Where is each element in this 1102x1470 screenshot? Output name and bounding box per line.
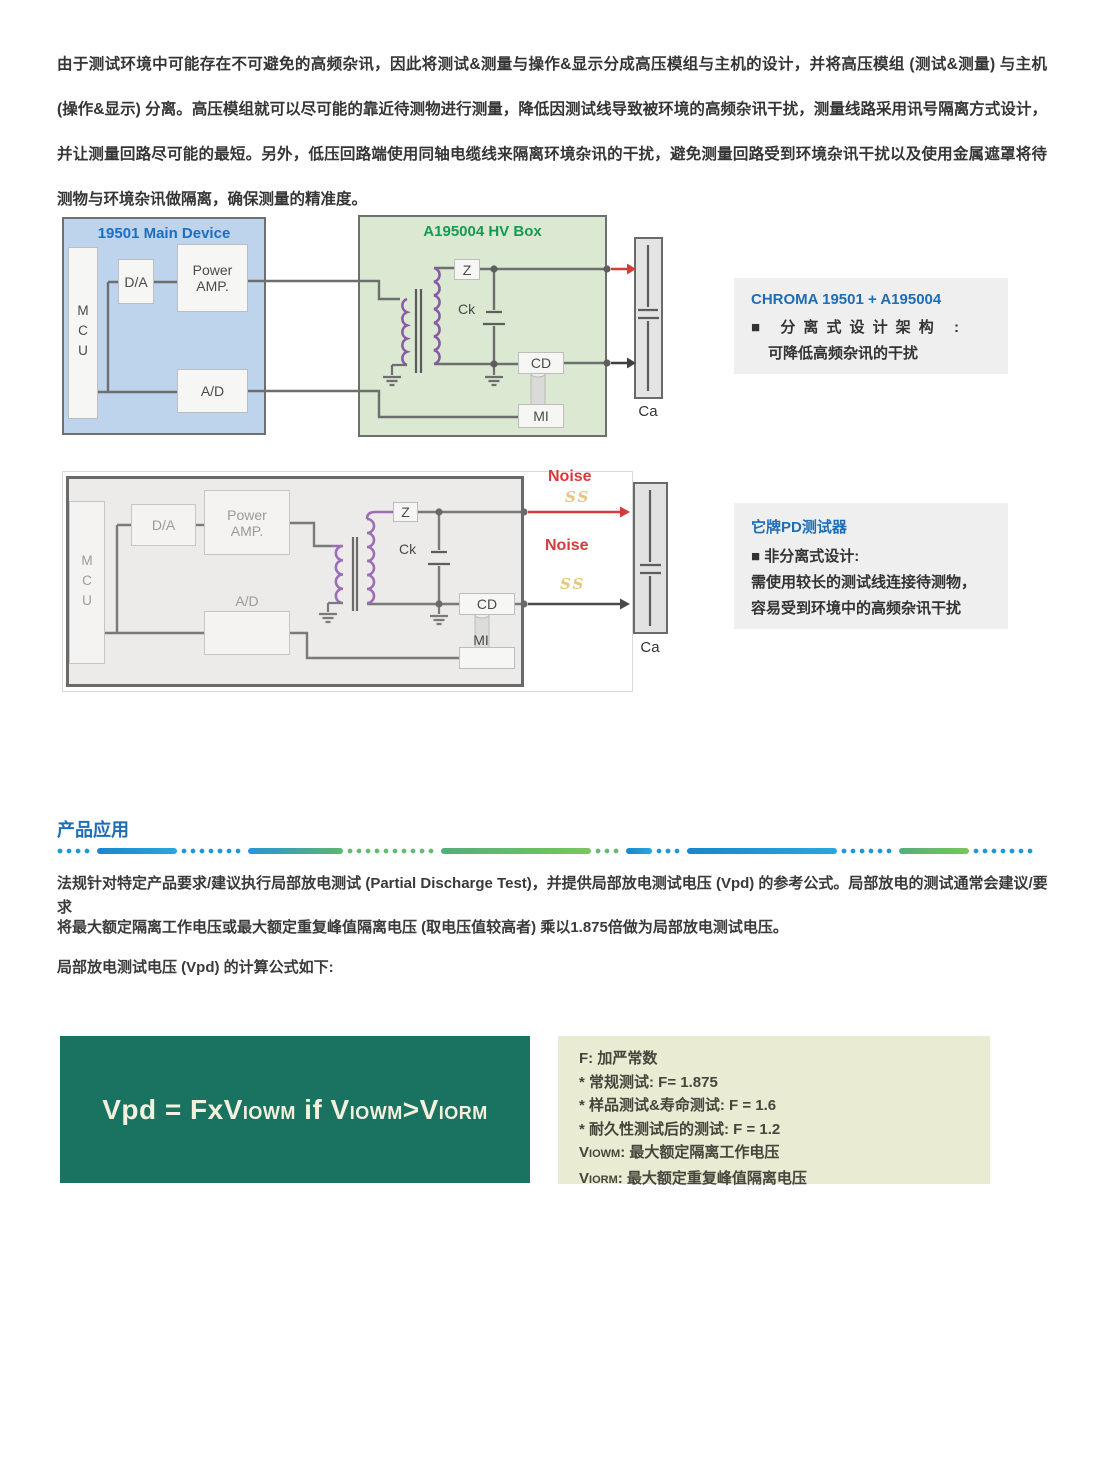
section-divider	[57, 847, 1047, 854]
ck-label: Ck	[399, 541, 416, 557]
mi-block	[459, 647, 515, 669]
ca-label: Ca	[630, 639, 670, 656]
divider-bar	[248, 848, 343, 854]
cd-block: CD	[459, 593, 515, 615]
hv-box-title: A195004 HV Box	[358, 223, 607, 240]
da-block: D/A	[118, 259, 154, 304]
mi-label: MI	[461, 632, 501, 648]
divider-dots	[973, 848, 1036, 854]
mi-block: MI	[518, 404, 564, 428]
legend-sample-test: * 样品测试&寿命测试: F = 1.6	[579, 1094, 969, 1118]
legend-viorm: VIORM: 最大额定重复峰值隔离电压	[579, 1167, 969, 1193]
formula-legend-box: F: 加严常数 * 常规测试: F= 1.875 * 样品测试&寿命测试: F …	[558, 1036, 990, 1184]
ca-label: Ca	[628, 403, 668, 420]
applications-paragraph-line3: 局部放电测试电压 (Vpd) 的计算公式如下:	[57, 956, 1049, 980]
applications-paragraph-line1: 法规针对特定产品要求/建议执行局部放电测试 (Partial Discharge…	[57, 872, 1049, 920]
intro-paragraph: 由于测试环境中可能存在不可避免的高频杂讯，因此将测试&测量与操作&显示分成高压模…	[57, 42, 1047, 222]
divider-dots	[57, 848, 93, 854]
section-title: 产品应用	[57, 816, 129, 842]
mcu-block: MCU	[69, 501, 105, 664]
power-amp-block: Power AMP.	[204, 490, 290, 555]
legend-viowm: VIOWM: 最大额定隔离工作电压	[579, 1141, 969, 1167]
mcu-block: MCU	[68, 247, 98, 419]
figure-other-brand-tester: MCU D/A Power AMP. A/D Z Ck CD MI Noise …	[62, 471, 674, 699]
legend-f: F: 加严常数	[579, 1047, 969, 1071]
noise-squiggle-bottom: SS	[560, 575, 585, 593]
note1-title: CHROMA 19501 + A195004	[751, 291, 991, 308]
note2-line1: ■ 非分离式设计:	[751, 544, 991, 570]
divider-dots	[656, 848, 683, 854]
ad-label: A/D	[204, 593, 290, 609]
output-arrow-hv	[611, 264, 636, 275]
note2-line2: 需使用较长的测试线连接待测物，	[751, 570, 991, 596]
divider-dots	[595, 848, 622, 854]
noise-label-top: Noise	[548, 468, 592, 486]
z-block: Z	[454, 259, 480, 280]
output-arrow-cd	[611, 358, 636, 369]
ad-block	[204, 611, 290, 655]
note1-line2: 可降低高频杂讯的干扰	[751, 341, 991, 367]
note-other-brand: 它牌PD测试器 ■ 非分离式设计: 需使用较长的测试线连接待测物， 容易受到环境…	[734, 503, 1008, 629]
ad-block: A/D	[177, 369, 248, 413]
divider-bar	[97, 848, 177, 854]
note-chroma-design: CHROMA 19501 + A195004 ■ 分离式设计架构 : 可降低高频…	[734, 278, 1008, 374]
figure-separated-design: 19501 Main Device MCU D/A Power AMP. A/D…	[62, 215, 674, 440]
note2-line3: 容易受到环境中的高频杂讯干扰	[751, 596, 991, 622]
divider-dots	[181, 848, 244, 854]
legend-regular-test: * 常规测试: F= 1.875	[579, 1071, 969, 1095]
ca-capacitor-box	[633, 482, 668, 634]
note1-line1: ■ 分离式设计架构 :	[751, 315, 959, 341]
cd-block: CD	[518, 352, 564, 374]
note2-title: 它牌PD测试器	[751, 516, 991, 537]
applications-paragraph-line2: 将最大额定隔离工作电压或最大额定重复峰值隔离电压 (取电压值较高者) 乘以1.8…	[57, 916, 1049, 940]
vpd-formula-box: Vpd = FxVIOWM if VIOWM>VIORM	[60, 1036, 530, 1183]
noise-squiggle-top: SS	[565, 488, 590, 506]
divider-dots	[841, 848, 895, 854]
vpd-formula: Vpd = FxVIOWM if VIOWM>VIORM	[102, 1094, 488, 1126]
ca-capacitor-box	[634, 237, 663, 399]
power-amp-block: Power AMP.	[177, 244, 248, 312]
legend-endurance-test: * 耐久性测试后的测试: F = 1.2	[579, 1118, 969, 1142]
noise-label-mid: Noise	[545, 537, 589, 555]
divider-dots	[347, 848, 437, 854]
divider-bar	[899, 848, 969, 854]
divider-bar	[687, 848, 837, 854]
divider-bar	[626, 848, 652, 854]
divider-bar	[441, 848, 591, 854]
da-block: D/A	[131, 504, 196, 546]
main-device-title: 19501 Main Device	[62, 225, 266, 242]
z-block: Z	[393, 502, 418, 522]
ck-label: Ck	[458, 301, 475, 317]
document-page: 由于测试环境中可能存在不可避免的高频杂讯，因此将测试&测量与操作&显示分成高压模…	[0, 0, 1102, 1470]
hv-box	[358, 215, 607, 437]
